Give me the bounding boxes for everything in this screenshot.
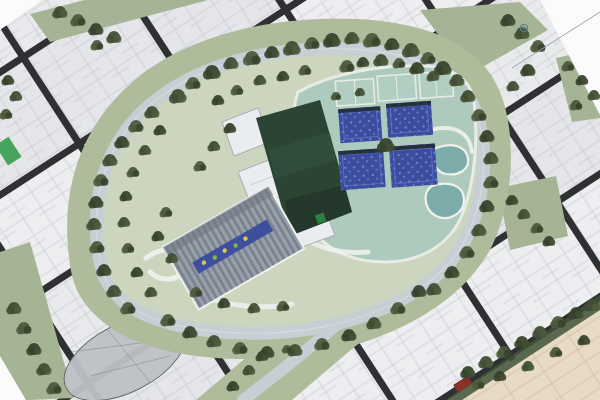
- tree-canopy: [52, 10, 60, 18]
- tree-canopy: [178, 94, 187, 103]
- tree-canopy: [233, 384, 240, 391]
- tree-canopy: [471, 228, 479, 236]
- tree-canopy: [26, 347, 34, 355]
- tree-canopy: [93, 178, 101, 186]
- tree-canopy: [223, 61, 231, 69]
- tree-canopy: [91, 44, 98, 51]
- tree-canopy: [139, 149, 146, 156]
- tree-canopy: [14, 306, 22, 314]
- tree-canopy: [240, 346, 248, 354]
- tree-canopy: [206, 339, 214, 347]
- tree-canopy: [411, 289, 419, 297]
- tree-canopy: [131, 271, 138, 278]
- tree-canopy: [524, 212, 531, 219]
- tree-canopy: [522, 365, 529, 372]
- tree-canopy: [97, 245, 105, 253]
- tree-canopy: [152, 110, 160, 118]
- tree-canopy: [576, 311, 584, 319]
- tree-canopy: [231, 89, 238, 96]
- tree-canopy: [409, 66, 417, 74]
- tree-canopy: [392, 42, 400, 50]
- tree-canopy: [312, 41, 320, 49]
- tree-canopy: [417, 66, 425, 74]
- tree-canopy: [323, 38, 333, 48]
- tree-canopy: [420, 56, 428, 64]
- tree-canopy: [154, 129, 161, 136]
- tree-canopy: [347, 64, 355, 72]
- tree-canopy: [224, 127, 231, 134]
- aerial-site-plan: [0, 0, 600, 400]
- tree-canopy: [54, 386, 62, 394]
- tree-canopy: [232, 346, 240, 354]
- tree-canopy: [208, 145, 215, 152]
- tree-canopy: [377, 143, 387, 153]
- tree-canopy: [528, 364, 535, 371]
- tree-canopy: [137, 270, 144, 277]
- tree-canopy: [419, 289, 427, 297]
- tree-canopy: [292, 46, 301, 55]
- tree-canopy: [570, 104, 577, 111]
- tree-canopy: [522, 340, 530, 348]
- tree-canopy: [248, 307, 255, 314]
- tree-canopy: [6, 306, 14, 314]
- tree-canopy: [428, 56, 436, 64]
- tree-canopy: [543, 240, 550, 247]
- tree-canopy: [366, 321, 374, 329]
- tree-canopy: [262, 354, 269, 361]
- tree-canopy: [336, 95, 341, 100]
- tree-canopy: [582, 78, 589, 85]
- tree-canopy: [126, 194, 133, 201]
- tree-canopy: [500, 18, 508, 26]
- tree-canopy: [522, 31, 530, 39]
- tree-canopy: [512, 198, 519, 205]
- tree-canopy: [549, 239, 556, 246]
- tree-canopy: [277, 75, 284, 82]
- tree-canopy: [168, 318, 176, 326]
- tree-canopy: [78, 18, 86, 26]
- tree-canopy: [185, 81, 193, 89]
- tree-canopy: [114, 35, 122, 43]
- tree-canopy: [231, 61, 239, 69]
- tree-canopy: [122, 247, 129, 254]
- tree-canopy: [194, 165, 201, 172]
- tree-canopy: [363, 60, 370, 67]
- tree-canopy: [214, 144, 221, 151]
- tree-canopy: [584, 338, 591, 345]
- tree-canopy: [96, 200, 104, 208]
- skate-pool: [426, 184, 464, 218]
- tree-canopy: [393, 62, 400, 69]
- tree-canopy: [513, 84, 520, 91]
- tree-canopy: [158, 234, 165, 241]
- tree-canopy: [457, 78, 465, 86]
- tree-canopy: [264, 50, 272, 58]
- tree-canopy: [2, 79, 9, 86]
- tree-canopy: [386, 143, 395, 152]
- tree-canopy: [532, 330, 540, 338]
- tree-canopy: [283, 46, 293, 56]
- tree-canopy: [166, 257, 173, 264]
- tree-canopy: [96, 268, 104, 276]
- tree-canopy: [88, 27, 96, 35]
- surveyor-pin-dot: [523, 27, 526, 30]
- tree-canopy: [128, 306, 136, 314]
- tree-canopy: [487, 204, 495, 212]
- tree-canopy: [218, 302, 225, 309]
- tree-canopy: [468, 370, 476, 378]
- tree-canopy: [70, 18, 78, 26]
- tree-canopy: [433, 74, 440, 81]
- tree-canopy: [594, 93, 600, 100]
- tree-canopy: [331, 95, 337, 101]
- tree-canopy: [479, 204, 487, 212]
- tree-canopy: [128, 246, 135, 253]
- tree-canopy: [518, 213, 525, 220]
- tree-canopy: [277, 305, 284, 312]
- tree-canopy: [94, 222, 102, 230]
- tree-canopy: [460, 370, 468, 378]
- tree-canopy: [160, 211, 167, 218]
- tree-canopy: [144, 110, 152, 118]
- tree-canopy: [531, 227, 538, 234]
- tree-canopy: [160, 318, 168, 326]
- tree-canopy: [398, 306, 406, 314]
- tree-canopy: [556, 350, 563, 357]
- tree-canopy: [101, 178, 109, 186]
- tree-canopy: [491, 156, 499, 164]
- tree-canopy: [374, 321, 382, 329]
- tree-canopy: [227, 385, 234, 392]
- tree-canopy: [97, 43, 104, 50]
- tree-canopy: [372, 38, 381, 47]
- tree-canopy: [6, 112, 13, 119]
- tree-canopy: [514, 340, 522, 348]
- tree-canopy: [260, 78, 267, 85]
- tree-canopy: [558, 320, 566, 328]
- tree-canopy: [224, 301, 231, 308]
- tree-canopy: [434, 287, 442, 295]
- tree-canopy: [507, 85, 514, 92]
- tree-canopy: [322, 342, 330, 350]
- tree-canopy: [145, 291, 152, 298]
- tree-canopy: [576, 79, 583, 86]
- tree-canopy: [212, 99, 219, 106]
- tree-canopy: [478, 360, 486, 368]
- tree-canopy: [249, 368, 256, 375]
- tree-canopy: [592, 303, 600, 311]
- tree-canopy: [196, 290, 203, 297]
- tree-canopy: [128, 124, 136, 132]
- tree-canopy: [411, 48, 420, 57]
- tree-canopy: [588, 94, 595, 101]
- tree-canopy: [218, 98, 225, 105]
- tree-canopy: [332, 38, 341, 47]
- tree-canopy: [127, 171, 134, 178]
- tree-canopy: [118, 221, 125, 228]
- tree-canopy: [349, 333, 357, 341]
- tree-canopy: [122, 140, 130, 148]
- tree-canopy: [486, 360, 494, 368]
- tree-canopy: [254, 306, 261, 313]
- tree-canopy: [479, 228, 487, 236]
- site-plan-svg: [0, 0, 600, 400]
- tree-canopy: [243, 56, 253, 66]
- tree-canopy: [230, 126, 237, 133]
- tree-canopy: [467, 250, 475, 258]
- tree-canopy: [578, 339, 585, 346]
- tree-canopy: [491, 180, 499, 188]
- tree-canopy: [427, 75, 434, 82]
- tree-canopy: [452, 270, 460, 278]
- tree-canopy: [89, 245, 97, 253]
- tree-canopy: [243, 369, 250, 376]
- tree-canopy: [483, 156, 491, 164]
- tree-canopy: [151, 290, 158, 297]
- tree-canopy: [384, 42, 392, 50]
- tree-canopy: [479, 134, 487, 142]
- tree-canopy: [426, 287, 434, 295]
- tree-canopy: [283, 304, 290, 311]
- tree-canopy: [341, 333, 349, 341]
- tree-canopy: [182, 330, 190, 338]
- tree-canopy: [36, 367, 44, 375]
- tree-canopy: [114, 140, 122, 148]
- tree-canopy: [478, 382, 485, 389]
- tree-canopy: [214, 339, 222, 347]
- tree-canopy: [399, 61, 406, 68]
- tree-canopy: [46, 386, 54, 394]
- tree-canopy: [200, 164, 207, 171]
- tree-canopy: [295, 348, 303, 356]
- tree-canopy: [114, 289, 122, 297]
- tree-canopy: [576, 103, 583, 110]
- tree-canopy: [169, 94, 179, 104]
- tree-canopy: [8, 78, 15, 85]
- tree-canopy: [190, 291, 197, 298]
- tree-canopy: [44, 367, 52, 375]
- tree-canopy: [483, 180, 491, 188]
- tree-canopy: [360, 91, 365, 96]
- tree-canopy: [520, 68, 528, 76]
- tree-canopy: [256, 355, 263, 362]
- tree-canopy: [304, 41, 312, 49]
- tree-canopy: [282, 348, 288, 354]
- tree-canopy: [106, 289, 114, 297]
- tree-canopy: [344, 36, 352, 44]
- tree-canopy: [550, 320, 558, 328]
- tree-canopy: [444, 270, 452, 278]
- tree-canopy: [314, 342, 322, 350]
- tree-canopy: [471, 113, 479, 121]
- tree-canopy: [272, 50, 280, 58]
- tree-canopy: [496, 350, 504, 358]
- tree-canopy: [120, 306, 128, 314]
- tree-canopy: [537, 226, 544, 233]
- tree-canopy: [299, 69, 306, 76]
- tree-canopy: [24, 326, 32, 334]
- tree-canopy: [487, 134, 495, 142]
- tree-canopy: [193, 81, 201, 89]
- tree-canopy: [60, 10, 68, 18]
- tree-canopy: [133, 170, 140, 177]
- tree-canopy: [102, 158, 110, 166]
- tree-canopy: [352, 36, 360, 44]
- tree-canopy: [449, 78, 457, 86]
- tree-canopy: [568, 311, 576, 319]
- tree-canopy: [584, 303, 592, 311]
- tree-canopy: [357, 61, 364, 68]
- tree-canopy: [203, 70, 213, 80]
- tree-canopy: [363, 38, 373, 48]
- tree-canopy: [514, 31, 522, 39]
- tree-canopy: [528, 68, 536, 76]
- tree-canopy: [562, 65, 569, 72]
- tree-canopy: [120, 195, 127, 202]
- tree-canopy: [402, 48, 412, 58]
- tree-canopy: [373, 58, 381, 66]
- skate-pool: [432, 145, 468, 174]
- tree-canopy: [287, 348, 292, 353]
- tree-canopy: [136, 124, 144, 132]
- tree-canopy: [166, 210, 173, 217]
- tree-canopy: [305, 68, 312, 75]
- tree-canopy: [508, 18, 516, 26]
- tree-canopy: [283, 74, 290, 81]
- tree-canopy: [568, 64, 575, 71]
- tree-canopy: [460, 94, 468, 102]
- tree-canopy: [145, 148, 152, 155]
- tree-canopy: [88, 200, 96, 208]
- tree-canopy: [34, 347, 42, 355]
- tree-canopy: [110, 158, 118, 166]
- tree-canopy: [506, 199, 513, 206]
- tree-canopy: [443, 66, 452, 75]
- tree-canopy: [504, 350, 512, 358]
- tree-canopy: [494, 375, 501, 382]
- tree-canopy: [16, 326, 24, 334]
- tree-canopy: [459, 250, 467, 258]
- tree-canopy: [540, 330, 548, 338]
- tree-canopy: [172, 256, 179, 263]
- tree-canopy: [152, 235, 159, 242]
- tree-canopy: [254, 79, 261, 86]
- tree-canopy: [339, 64, 347, 72]
- tree-canopy: [86, 222, 94, 230]
- tree-canopy: [124, 220, 131, 227]
- tree-canopy: [160, 128, 167, 135]
- tree-canopy: [550, 351, 557, 358]
- tree-canopy: [252, 56, 261, 65]
- tree-canopy: [10, 95, 17, 102]
- tree-canopy: [104, 268, 112, 276]
- tree-canopy: [381, 58, 389, 66]
- tree-canopy: [106, 35, 114, 43]
- tree-canopy: [500, 374, 507, 381]
- tree-canopy: [468, 94, 476, 102]
- tree-canopy: [96, 27, 104, 35]
- tree-canopy: [190, 330, 198, 338]
- tree-canopy: [16, 94, 23, 101]
- tree-canopy: [355, 91, 361, 97]
- tree-canopy: [479, 113, 487, 121]
- tree-canopy: [237, 88, 244, 95]
- tree-canopy: [472, 383, 479, 390]
- tree-canopy: [212, 70, 221, 79]
- tree-canopy: [390, 306, 398, 314]
